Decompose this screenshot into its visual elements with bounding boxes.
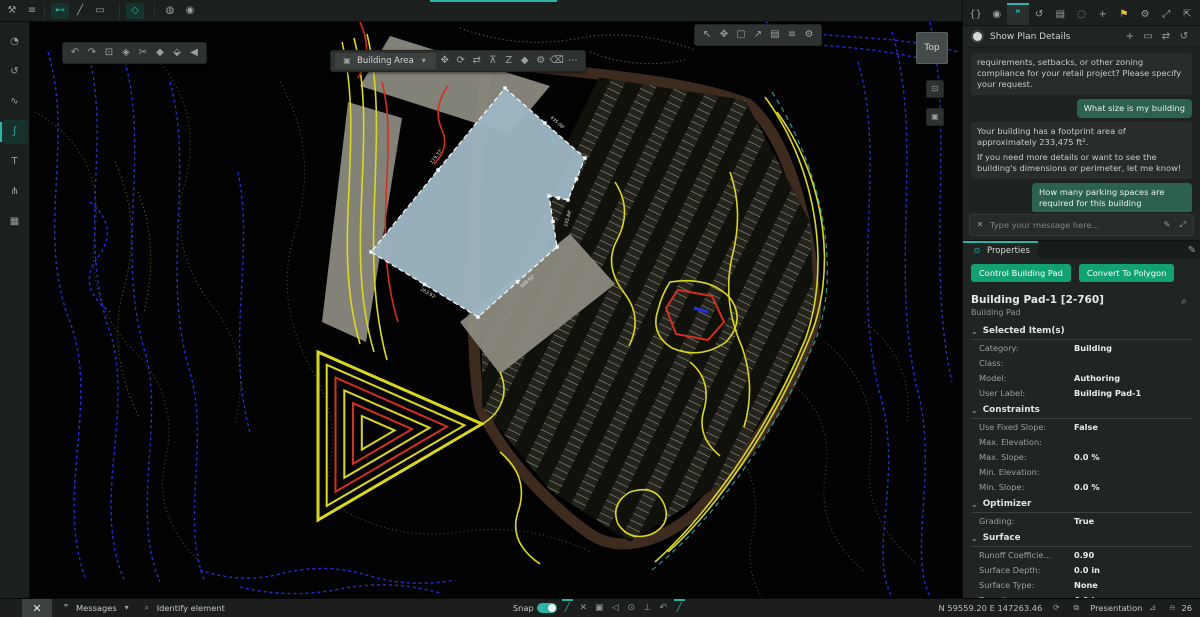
chat-message-user: What size is my building	[1077, 99, 1192, 118]
rotate-icon: ⟳	[453, 53, 469, 69]
view-toolbar: ↖✥▢↗▤≡⚙	[694, 24, 822, 46]
card-icon: ▤	[767, 27, 783, 43]
snap-mode-tri[interactable]: ◁	[608, 600, 623, 617]
property-value[interactable]: 0.0 in	[1074, 565, 1100, 575]
properties-actions: Control Building Pad Convert To Polygon	[963, 258, 1200, 288]
status-bar: ✕ ❞ Messages ▾ ⌕ Identify element Snap ╱…	[0, 598, 1200, 617]
back-button[interactable]: ◀	[186, 45, 202, 61]
clipboard-button[interactable]: ⊡	[101, 45, 117, 61]
shape-icon: ◇	[127, 3, 143, 19]
sidebar-item-wave[interactable]: ∿	[2, 90, 28, 114]
property-value[interactable]: None	[1074, 580, 1098, 590]
property-row: Runoff Coefficie...0.90	[971, 547, 1192, 562]
wave-icon: ∿	[7, 94, 23, 110]
cut-button[interactable]: ✂	[135, 45, 151, 61]
redo-button[interactable]: ↷	[84, 45, 100, 61]
chevron-down-icon: ▾	[121, 602, 133, 614]
expand-chat-icon[interactable]: ⤢	[1177, 219, 1189, 231]
chat-icon: ❞	[1010, 7, 1026, 23]
panel-tab-flag[interactable]: ⚑	[1113, 3, 1134, 25]
sidebar-item-text[interactable]: T	[2, 150, 28, 174]
property-row: Use Fixed Slope:False	[971, 419, 1192, 434]
gear-icon: ⚙	[533, 53, 549, 69]
panel-tab-record[interactable]: ◌	[1071, 3, 1092, 25]
snap-mode-perp[interactable]: ⊥	[640, 600, 655, 617]
property-label: User Label:	[979, 388, 1074, 398]
property-row: Grading:True	[971, 513, 1192, 528]
presentation-label: Presentation	[1090, 603, 1142, 613]
chat-header: Show Plan Details +▭⇄↺	[963, 26, 1200, 48]
snap-mode-slash[interactable]: ╱	[560, 600, 575, 617]
property-label: Max. Slope:	[979, 452, 1074, 462]
rect-icon: ▭	[92, 3, 108, 19]
property-row: Max. Elevation:	[971, 434, 1192, 449]
cursor-icon: ↖	[699, 27, 715, 43]
hex-button[interactable]: ◆	[517, 53, 533, 69]
property-label: Surface Type:	[979, 580, 1074, 590]
property-label: Surface Depth:	[979, 565, 1074, 575]
snap-mode-dot[interactable]: ⊙	[624, 600, 639, 617]
sidebar-item-grade[interactable]: ∫	[2, 120, 28, 144]
property-label: Class:	[979, 358, 1074, 368]
erase-button[interactable]: ⌫	[549, 53, 565, 69]
notification-count: 26	[1181, 603, 1192, 613]
selection-type-dropdown[interactable]: ▣ Building Area ▾	[335, 53, 436, 69]
notifications-button[interactable]: ⍾ 26	[1166, 602, 1192, 614]
assistant-avatar	[971, 30, 984, 43]
snap-mode-grid[interactable]: ▣	[592, 600, 607, 617]
identify-icon: ⌕	[141, 602, 153, 614]
panel-tab-doc[interactable]: ▤	[1050, 3, 1071, 25]
erase-icon: ⌫	[549, 53, 565, 69]
section-header[interactable]: ⌄Surface	[971, 528, 1192, 547]
gear-icon: ⚙	[1137, 7, 1153, 23]
code-icon: {}	[968, 7, 984, 23]
selection-toolbar: ▣ Building Area ▾ ✥⟳⇄⊼Z◆⚙⌫⋯	[330, 50, 586, 72]
site-design-application: { "colors": { "accent": "#2bb3a3", "butt…	[0, 0, 1200, 617]
circle-a-button[interactable]: ◍	[161, 3, 179, 19]
panel-tab-assistant[interactable]: ◉	[986, 3, 1007, 25]
orbit-icon[interactable]: ⟳	[1050, 602, 1062, 614]
view-cube-label: Top	[924, 43, 939, 53]
move-icon: ✥	[437, 53, 453, 69]
grid-icon: ▣	[929, 111, 941, 123]
properties-icon: ⊙	[971, 245, 983, 257]
line-icon: ╱	[72, 3, 88, 19]
messages-label: Messages	[76, 603, 117, 613]
tools-icon[interactable]: ⚒	[4, 3, 20, 19]
rows-icon: ≡	[784, 27, 800, 43]
property-value[interactable]: Building Pad-1	[1074, 388, 1141, 398]
snap-modes: ╱✕▣◁⊙⊥↶╱	[560, 600, 687, 617]
hex-icon: ◆	[517, 53, 533, 69]
undo-button[interactable]: ↶	[67, 45, 83, 61]
properties-tab-label: Properties	[987, 246, 1030, 256]
view-cube[interactable]: Top	[916, 32, 948, 64]
chat-plus-button[interactable]: +	[1122, 29, 1138, 45]
bell-icon: ⍾	[1166, 602, 1178, 614]
selection-subtitle: Building Pad	[971, 308, 1176, 317]
section-header[interactable]: ⌄Selected Item(s)	[971, 321, 1192, 340]
window-icon: ▭	[1140, 29, 1156, 45]
properties-tab-bar: ⊙ Properties ✎	[963, 240, 1200, 258]
undo-icon: ↶	[67, 45, 83, 61]
active-shape-group: ◇	[119, 3, 150, 19]
snap-mode-clear[interactable]: ✕	[576, 600, 591, 617]
panel-tab-gear[interactable]: ⚙	[1135, 3, 1156, 25]
site-plan-drawing: 435.08'155.84'509.62'263.92'119.37'	[30, 22, 962, 598]
right-panel: {}◉❞↺▤◌+⚑⚙⤢⇱ Show Plan Details +▭⇄↺ requ…	[962, 0, 1200, 598]
panel-tab-history[interactable]: ↺	[1029, 3, 1050, 25]
layers-icon: ⊡	[929, 83, 941, 95]
property-value[interactable]: 0.90	[1074, 550, 1094, 560]
settings-view-button[interactable]: ⚙	[801, 27, 817, 43]
property-label: Category:	[979, 343, 1074, 353]
back-icon: ◀	[186, 45, 202, 61]
chat-swap-button[interactable]: ⇄	[1158, 29, 1174, 45]
elevate-icon: ⊼	[485, 53, 501, 69]
property-label: Grading:	[979, 516, 1074, 526]
site-plan-canvas[interactable]: 435.08'155.84'509.62'263.92'119.37' ↶↷⊡◈…	[30, 22, 962, 598]
property-row: Min. Elevation:	[971, 464, 1192, 479]
chat-message-assistant: Your building has a footprint area of ap…	[971, 122, 1192, 179]
dock-panel-button[interactable]: ⇱	[1177, 3, 1198, 25]
property-value[interactable]: True	[1074, 516, 1094, 526]
section-header[interactable]: ⌄Optimizer	[971, 494, 1192, 513]
export-view-button[interactable]: ↗	[750, 27, 766, 43]
prism-icon: ⬙	[169, 45, 185, 61]
selection-title-row: Building Pad-1 [2-760] Building Pad ⌕	[963, 288, 1200, 319]
zorder-icon: Z	[501, 53, 517, 69]
toolbox-icon: ▦	[7, 214, 23, 230]
text-icon: T	[7, 154, 23, 170]
loading-progress-bar	[430, 0, 557, 2]
share-icon: ⋔	[7, 184, 23, 200]
selection-actions: ✥⟳⇄⊼Z◆⚙⌫⋯	[437, 53, 581, 69]
property-value[interactable]: 0.0 %	[1074, 482, 1100, 492]
cursor-view-button[interactable]: ↖	[699, 27, 715, 43]
plus-icon: +	[1122, 29, 1138, 45]
property-label: Max. Elevation:	[979, 437, 1074, 447]
rows-view-button[interactable]: ≡	[784, 27, 800, 43]
chevron-down-icon: ⌄	[971, 534, 978, 543]
chat-message-list: requirements, setbacks, or other zoning …	[963, 48, 1200, 212]
line-tool-button[interactable]: ╱	[71, 3, 89, 19]
snap-label: Snap	[513, 603, 534, 613]
property-row: Min. Slope:0.0 %	[971, 479, 1192, 494]
history-icon: ↺	[1176, 29, 1192, 45]
more-button[interactable]: ⋯	[565, 53, 581, 69]
property-label: Model:	[979, 373, 1074, 383]
clear-icon[interactable]: ✕	[974, 219, 986, 231]
app-sidebar: ◔↺∿∫T⋔▦	[0, 22, 30, 598]
property-row: Category:Building	[971, 340, 1192, 355]
edit-icon[interactable]: ✎	[1161, 219, 1173, 231]
tab-properties[interactable]: ⊙ Properties	[963, 241, 1038, 258]
top-toolbar: ⚒ ≡ ⊷╱▭ ◇ ◍◉	[0, 0, 962, 22]
layers-button[interactable]: ⊡	[926, 80, 944, 98]
measure-tool-button[interactable]: ⊷	[51, 3, 69, 19]
property-value[interactable]: 0.0 %	[1074, 452, 1100, 462]
shape-tool-button[interactable]: ◇	[126, 3, 144, 19]
prism-button[interactable]: ⬙	[169, 45, 185, 61]
view-mode-group: ◍◉	[154, 3, 205, 19]
panel-tab-code[interactable]: {}	[965, 3, 986, 25]
sidebar-item-gauge[interactable]: ◔	[2, 30, 28, 54]
pan-icon: ✥	[716, 27, 732, 43]
expand-icon: ⤢	[1158, 7, 1174, 23]
swap-icon: ⇄	[469, 53, 485, 69]
chevron-down-icon: ⌄	[971, 327, 978, 336]
messages-button[interactable]: ❞ Messages ▾	[60, 602, 133, 614]
cursor-coordinates: N 59559.20 E 147263.46	[939, 603, 1043, 613]
chat-header-actions: +▭⇄↺	[1122, 29, 1192, 45]
property-row: Max. Slope:0.0 %	[971, 449, 1192, 464]
diamond-icon: ◆	[152, 45, 168, 61]
property-value[interactable]: Building	[1074, 343, 1112, 353]
section-label: Selected Item(s)	[983, 326, 1065, 336]
search-icon[interactable]: ⌕	[1176, 294, 1192, 310]
identify-label: Identify element	[157, 603, 225, 613]
chat-panel-title: Show Plan Details	[990, 32, 1116, 42]
chat-message-assistant: requirements, setbacks, or other zoning …	[971, 53, 1192, 95]
circle-a-icon: ◍	[162, 3, 178, 19]
identify-element-hint[interactable]: ⌕ Identify element	[141, 602, 225, 614]
frame-view-button[interactable]: ▢	[733, 27, 749, 43]
paint-button[interactable]: ◈	[118, 45, 134, 61]
clipboard-icon: ⊡	[101, 45, 117, 61]
flag-icon: ⚑	[1116, 7, 1132, 23]
pyramid-icon: ⊿	[1146, 602, 1158, 614]
elevate-button[interactable]: ⊼	[485, 53, 501, 69]
property-row: Model:Authoring	[971, 370, 1192, 385]
area-icon: ▣	[341, 55, 353, 67]
add-icon: +	[1095, 7, 1111, 23]
selection-label: Building Area	[357, 56, 414, 66]
rotate-button[interactable]: ⟳	[453, 53, 469, 69]
frame-icon: ▢	[733, 27, 749, 43]
pan-view-button[interactable]: ✥	[716, 27, 732, 43]
section-label: Optimizer	[983, 499, 1032, 509]
rect-tool-button[interactable]: ▭	[91, 3, 109, 19]
dock-icon: ⇱	[1179, 7, 1195, 23]
section-label: Constraints	[983, 405, 1040, 415]
card-view-button[interactable]: ▤	[767, 27, 783, 43]
grade-icon: ∫	[7, 124, 23, 140]
control-building-pad-button[interactable]: Control Building Pad	[971, 264, 1071, 282]
gear-button[interactable]: ⚙	[533, 53, 549, 69]
properties-grid: ⌄Selected Item(s)Category:BuildingClass:…	[963, 319, 1200, 598]
more-icon: ⋯	[565, 53, 581, 69]
messages-icon: ❞	[60, 602, 72, 614]
gauge-icon: ◔	[7, 34, 23, 50]
chat-history-button[interactable]: ↺	[1176, 29, 1192, 45]
panel-tab-add[interactable]: +	[1092, 3, 1113, 25]
circle-b-icon: ◉	[182, 3, 198, 19]
chat-input[interactable]	[990, 220, 1157, 230]
property-label: Use Fixed Slope:	[979, 422, 1074, 432]
circle-b-button[interactable]: ◉	[181, 3, 199, 19]
chat-input-row: ✕ ✎ ⤢	[969, 214, 1194, 236]
measure-icon: ⊷	[52, 3, 68, 19]
property-label: Runoff Coefficie...	[979, 550, 1074, 560]
swap-button[interactable]: ⇄	[469, 53, 485, 69]
selection-title: Building Pad-1 [2-760]	[971, 294, 1176, 306]
snap-mode-slash[interactable]: ╱	[672, 600, 687, 617]
chevron-down-icon: ⌄	[971, 500, 978, 509]
grid-button[interactable]: ▣	[926, 108, 944, 126]
snap-toggle[interactable]	[537, 603, 557, 613]
property-row: Surface Depth:0.0 in	[971, 562, 1192, 577]
chat-message-user: How many parking spaces are required for…	[1032, 183, 1192, 213]
sidebar-item-share[interactable]: ⋔	[2, 180, 28, 204]
property-value[interactable]: Authoring	[1074, 373, 1120, 383]
menu-icon[interactable]: ≡	[24, 3, 40, 19]
export-icon: ↗	[750, 27, 766, 43]
drawing-tools-group: ⊷╱▭	[44, 3, 115, 19]
snap-controls: Snap ╱✕▣◁⊙⊥↶╱	[513, 600, 687, 617]
property-row: User Label:Building Pad-1	[971, 385, 1192, 400]
screen-icon[interactable]: ⧉	[1070, 602, 1082, 614]
property-row: Surface Type:None	[971, 577, 1192, 592]
settings-icon: ⚙	[801, 27, 817, 43]
swap-icon: ⇄	[1158, 29, 1174, 45]
section-label: Surface	[983, 533, 1021, 543]
paint-icon: ◈	[118, 45, 134, 61]
edit-properties-icon[interactable]: ✎	[1184, 243, 1200, 259]
cut-icon: ✂	[135, 45, 151, 61]
record-icon: ◌	[1074, 7, 1090, 23]
convert-to-polygon-button[interactable]: Convert To Polygon	[1079, 264, 1174, 282]
doc-icon: ▤	[1052, 7, 1068, 23]
logo-glyph: ✕	[32, 602, 41, 615]
section-header[interactable]: ⌄Constraints	[971, 400, 1192, 419]
property-label: Min. Slope:	[979, 482, 1074, 492]
chevron-down-icon: ⌄	[971, 406, 978, 415]
property-row: Class:	[971, 355, 1192, 370]
redo-icon: ↷	[84, 45, 100, 61]
history-icon: ↺	[7, 64, 23, 80]
panel-tab-strip: {}◉❞↺▤◌+⚑⚙⤢⇱	[963, 0, 1200, 26]
property-label: Min. Elevation:	[979, 467, 1074, 477]
assistant-icon: ◉	[989, 7, 1005, 23]
history-icon: ↺	[1031, 7, 1047, 23]
presentation-mode-button[interactable]: Presentation ⊿	[1090, 602, 1158, 614]
history-toolbar: ↶↷⊡◈✂◆⬙◀	[62, 42, 207, 64]
zorder-button[interactable]: Z	[501, 53, 517, 69]
move-button[interactable]: ✥	[437, 53, 453, 69]
expand-panel-button[interactable]: ⤢	[1156, 3, 1177, 25]
sidebar-item-history[interactable]: ↺	[2, 60, 28, 84]
panel-tab-chat[interactable]: ❞	[1007, 3, 1028, 25]
snap-mode-undo2[interactable]: ↶	[656, 600, 671, 617]
app-logo[interactable]: ✕	[22, 599, 52, 617]
chat-window-button[interactable]: ▭	[1140, 29, 1156, 45]
sidebar-item-toolbox[interactable]: ▦	[2, 210, 28, 234]
diamond-button[interactable]: ◆	[152, 45, 168, 61]
property-value[interactable]: False	[1074, 422, 1098, 432]
chevron-down-icon: ▾	[418, 55, 430, 67]
